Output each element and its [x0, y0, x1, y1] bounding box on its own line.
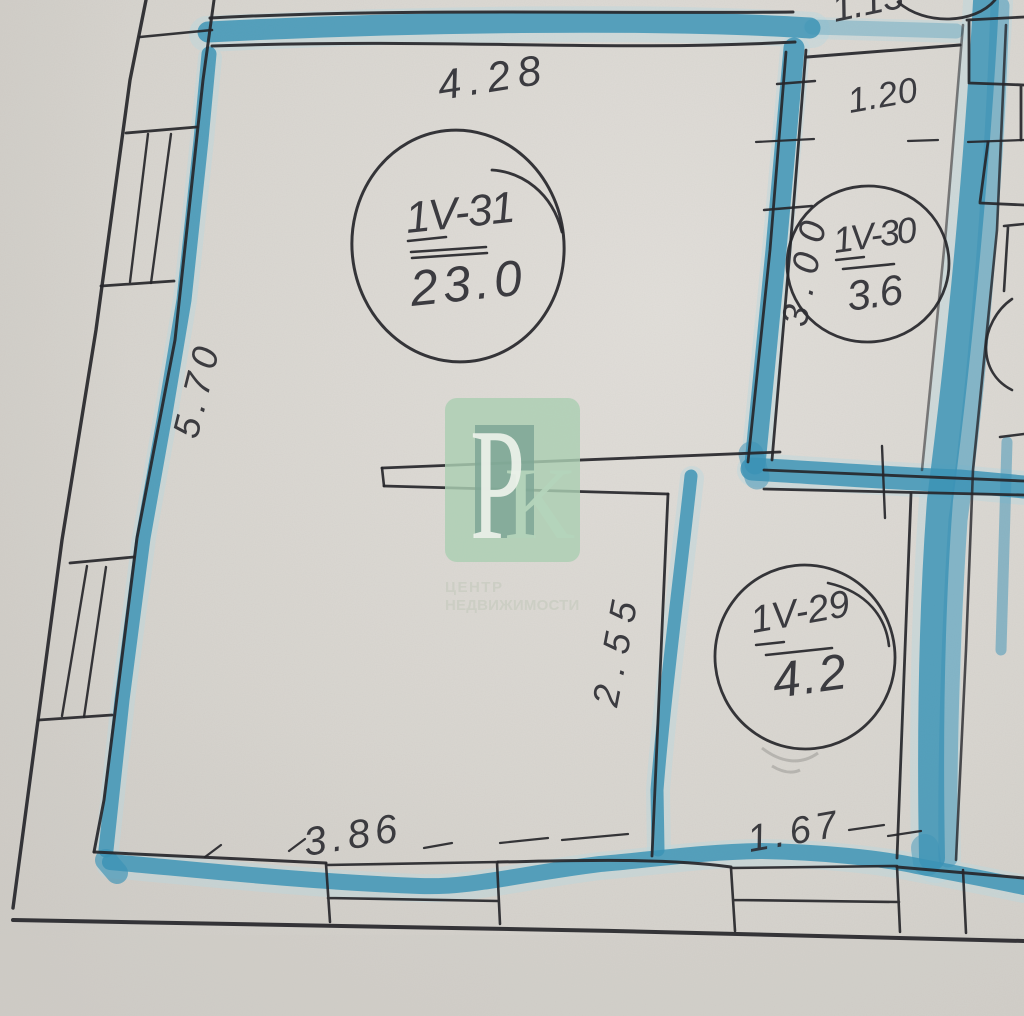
svg-text:ЦЕНТР: ЦЕНТР	[445, 579, 503, 596]
svg-text:Р: Р	[470, 395, 525, 573]
svg-text:4.2: 4.2	[769, 643, 850, 709]
svg-text:3.6: 3.6	[844, 265, 907, 319]
svg-text:НЕДВИЖИМОСТИ: НЕДВИЖИМОСТИ	[445, 597, 579, 614]
svg-text:23.0: 23.0	[406, 250, 524, 318]
